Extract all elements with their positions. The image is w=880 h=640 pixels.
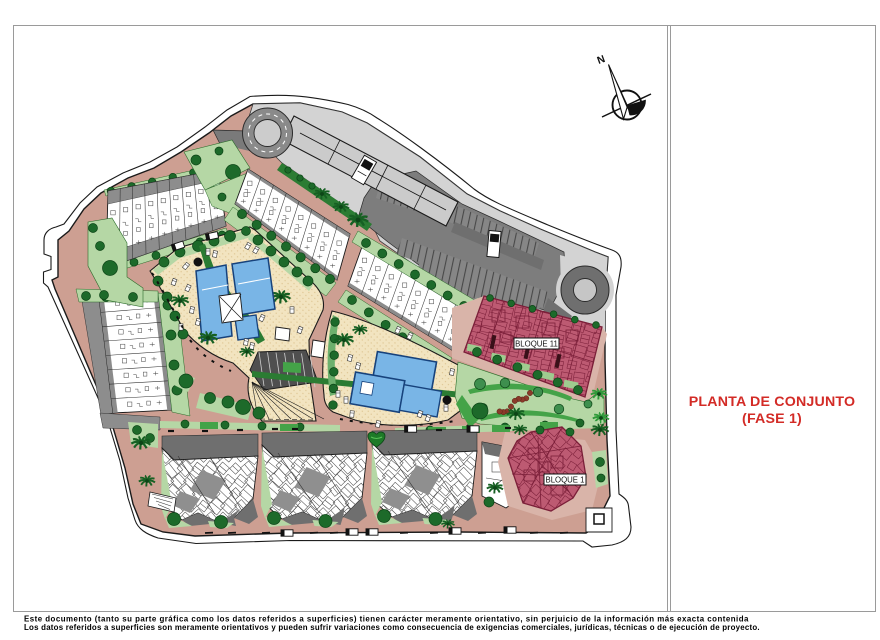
svg-text:Los datos referidos a superfic: Los datos referidos a superficies son me… bbox=[24, 623, 760, 632]
svg-text:PLANTA DE CONJUNTO: PLANTA DE CONJUNTO bbox=[689, 394, 856, 410]
svg-text:BLOQUE 11: BLOQUE 11 bbox=[515, 340, 558, 349]
svg-text:BLOQUE 1: BLOQUE 1 bbox=[546, 476, 585, 485]
svg-text:(FASE 1): (FASE 1) bbox=[742, 411, 802, 427]
